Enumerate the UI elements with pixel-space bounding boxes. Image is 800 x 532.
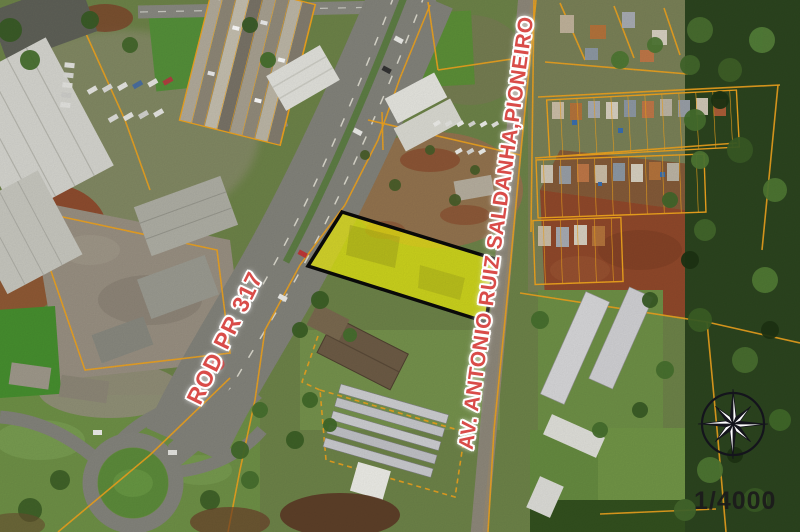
scale-label: 1/4000 [694, 487, 776, 516]
aerial-photo-canvas [0, 0, 800, 532]
photo-grain [0, 0, 800, 532]
aerial-map: ROD PR 317 AV. ANTONIO RUIZ SALDANHA,PIO… [0, 0, 800, 532]
